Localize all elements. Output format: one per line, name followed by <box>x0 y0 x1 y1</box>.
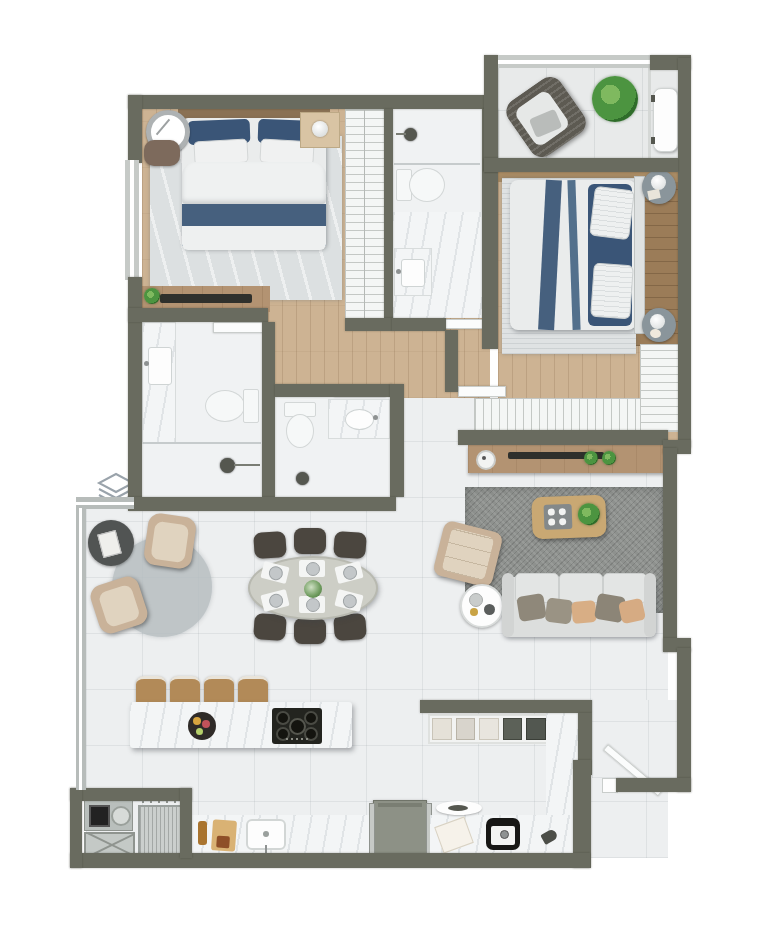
wall-living-top <box>458 430 668 445</box>
place-setting <box>260 561 289 584</box>
vase <box>649 328 661 339</box>
balcony-plant <box>592 76 638 122</box>
cooktop-controls <box>286 738 308 740</box>
side-table-bowl <box>484 604 495 615</box>
sofa-arm-left <box>502 573 514 637</box>
dining-table <box>248 556 378 620</box>
duvet-foot <box>182 226 326 250</box>
cup <box>548 508 555 515</box>
shelf-cell-dark <box>526 718 546 740</box>
kitchen-shelf-unit <box>428 714 550 744</box>
kitchen-counter-left <box>190 815 370 855</box>
wardrobe2-shelving-vertical <box>640 344 679 432</box>
bathroom2-vanity <box>142 322 176 444</box>
napkin <box>434 816 474 853</box>
balcony-bench <box>653 88 678 152</box>
toilet-tank <box>243 389 259 423</box>
bed2-white-pillow-bottom <box>590 263 634 320</box>
bedroom2-headboard <box>634 176 645 334</box>
wall-balcony-left <box>484 55 498 172</box>
bench-leg-bottom <box>651 137 655 144</box>
bedroom1-plant <box>144 288 160 304</box>
bedroom2-bed <box>510 180 636 330</box>
wardrobe1-divider <box>364 110 365 319</box>
wall-dining-top <box>128 497 396 511</box>
table-lamp <box>312 121 328 137</box>
dining-chair <box>253 531 287 559</box>
laundry-sink-unit <box>84 800 133 831</box>
wall-balcony-bedroom2 <box>484 158 678 172</box>
basin <box>148 347 172 385</box>
living-side-table <box>460 584 504 628</box>
toilet-bowl <box>286 414 314 448</box>
bottle <box>198 821 207 845</box>
vanity-faucet <box>396 269 401 274</box>
floor-plan <box>0 0 765 934</box>
kitchen-island <box>130 702 352 748</box>
bedroom1-nightstand <box>300 112 340 148</box>
wall-bath3-top <box>275 384 392 397</box>
pouf <box>144 140 180 166</box>
folded-item <box>89 805 110 827</box>
plate <box>267 565 284 582</box>
kitchen-counter-right <box>430 815 578 855</box>
bench-leg-top <box>651 95 655 102</box>
toilet-bowl <box>205 390 245 422</box>
wall-kitchen-top <box>420 700 592 713</box>
dining-chair <box>333 531 367 559</box>
bathroom3-vanity <box>328 399 390 439</box>
dresser-tv <box>160 294 252 303</box>
side-table-candle <box>470 608 478 616</box>
dining-chair <box>294 528 326 554</box>
glass-wall-left <box>76 508 86 790</box>
armchair-seat <box>98 584 141 629</box>
sofa-pillow-gray-2 <box>545 598 574 625</box>
gas-cooktop <box>272 708 322 744</box>
oven-rail-left <box>369 803 375 855</box>
bathroom3-toilet <box>282 402 316 448</box>
bathroom2-glass <box>143 442 261 444</box>
burner <box>304 711 318 725</box>
wall-bath2-top <box>128 308 268 322</box>
console-plant-2 <box>602 451 616 465</box>
cup <box>559 518 566 525</box>
bathroom1-vanity <box>394 248 432 296</box>
oven-range <box>373 800 427 856</box>
wall-closet1-bottom <box>345 318 393 331</box>
bathroom1-door <box>444 319 486 329</box>
kitchen-sink <box>246 819 286 850</box>
vanity-basin <box>401 259 425 287</box>
duvet-top <box>182 162 326 204</box>
shelf-cell-dark <box>503 718 523 740</box>
bread <box>216 836 230 849</box>
fruit <box>202 720 210 728</box>
wall-laundry-divider <box>180 788 192 858</box>
faucet <box>144 361 149 366</box>
place-setting <box>334 589 363 612</box>
bed2-white-pillow-top <box>589 186 635 241</box>
wardrobe2-shelving-horizontal <box>474 398 642 432</box>
bathroom2-toilet <box>205 388 259 422</box>
bathroom2-door <box>213 322 263 333</box>
coffee-table <box>531 495 606 540</box>
wall-laundry-top <box>70 788 192 801</box>
bathroom3-shower-head <box>296 472 309 485</box>
sofa-pillow-tan-1 <box>571 600 597 624</box>
wall-right-living <box>663 448 677 652</box>
wall-top <box>128 95 488 109</box>
wardrobe1-shelving <box>345 109 386 320</box>
shelf-cell-book <box>456 718 476 740</box>
wall-bath1-bottom <box>392 318 446 331</box>
place-setting <box>299 560 325 577</box>
place-setting <box>334 561 363 584</box>
clock-hand <box>156 119 170 136</box>
fruit <box>193 717 201 725</box>
speaker-dot <box>482 456 486 460</box>
bathroom1-toilet <box>396 168 444 200</box>
bedroom2-nightstand-bottom <box>642 308 676 342</box>
dining-chair <box>253 613 287 641</box>
plate <box>342 564 359 581</box>
wall-bath2-bath3-divider <box>262 322 275 497</box>
burner <box>276 711 290 725</box>
wall-left-upper <box>128 95 142 163</box>
wall-closet1-divider <box>384 109 393 318</box>
plate <box>268 592 285 609</box>
wall-bottom-right-vertical <box>573 760 591 868</box>
bedroom2-nightstand-top <box>642 170 676 204</box>
lamp <box>650 314 665 329</box>
place-setting <box>299 596 325 613</box>
nook-armchair-top <box>143 512 198 570</box>
wall-right-entry <box>677 648 691 792</box>
sofa-pillow-gray-1 <box>516 593 547 622</box>
plate <box>306 598 320 612</box>
sofa-arm-right <box>644 573 656 637</box>
wall-right-upper <box>678 58 691 448</box>
nook-book <box>97 530 122 558</box>
balcony-glass-partition <box>648 68 651 159</box>
serving-dish <box>436 801 482 815</box>
shelf-cell-book <box>479 718 499 740</box>
tv-console <box>468 445 666 473</box>
toilet-bowl <box>409 168 445 202</box>
cup <box>548 518 555 525</box>
scoop <box>540 828 558 845</box>
window-bedroom1 <box>125 160 139 280</box>
bedroom2-door <box>458 386 506 397</box>
side-table-cup <box>469 593 483 607</box>
drain <box>263 831 269 837</box>
serving-tray <box>544 504 573 530</box>
burner-center <box>289 718 306 735</box>
wall-entry-bottom <box>616 778 691 792</box>
basin <box>111 806 131 826</box>
plate <box>341 593 358 610</box>
dish-item <box>448 805 468 811</box>
bed2-blue-runner-1 <box>538 180 562 331</box>
shelf-cell-book <box>432 718 452 740</box>
place-setting <box>260 589 289 612</box>
dining-chair <box>294 618 326 644</box>
centerpiece <box>304 580 322 598</box>
fruit <box>196 728 203 735</box>
washing-machine <box>138 805 184 859</box>
cup <box>559 508 566 515</box>
bathroom1-shower-arm <box>396 133 406 135</box>
prep-faucet <box>500 830 509 839</box>
wall-bottom <box>70 853 590 868</box>
wall-hall-stub <box>445 330 458 392</box>
armchair-seat <box>150 521 189 563</box>
prep-sink <box>486 818 520 850</box>
wall-laundry-left <box>70 788 82 868</box>
bathroom2-shower-head <box>220 458 235 473</box>
basin <box>345 409 374 430</box>
console-plant-1 <box>584 451 598 465</box>
wall-bath3-right <box>390 384 404 497</box>
speaker <box>476 450 496 470</box>
cutting-board <box>211 819 237 852</box>
nook-dark-table <box>88 520 134 566</box>
oven-handle <box>378 803 422 807</box>
book <box>647 189 661 200</box>
bed2-blue-runner-2 <box>567 180 580 330</box>
lounge-cushion <box>441 527 494 580</box>
plate <box>306 562 320 576</box>
sofa <box>502 573 656 639</box>
bathroom2-shower-arm <box>234 464 260 466</box>
bathroom1-glass-screen <box>394 163 480 165</box>
coffee-table-plant <box>578 503 601 526</box>
window-balcony-top <box>498 55 652 68</box>
fruit-bowl <box>188 712 216 740</box>
faucet <box>373 415 378 420</box>
